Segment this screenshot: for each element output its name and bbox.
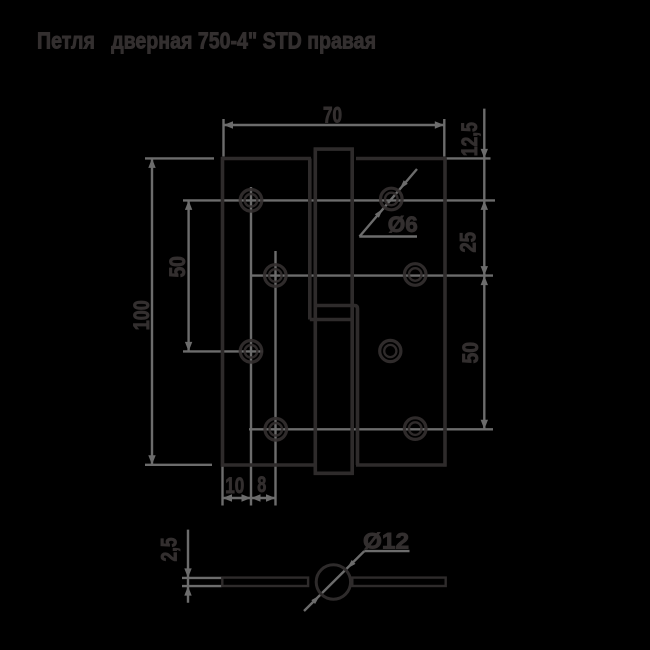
svg-text:8: 8 xyxy=(257,472,266,497)
svg-text:50: 50 xyxy=(458,342,483,364)
svg-text:Ø12: Ø12 xyxy=(363,529,409,554)
svg-text:Петля дверная 750-4" STD пра: Петля дверная 750-4" STD правая xyxy=(37,28,376,54)
svg-text:50: 50 xyxy=(165,256,190,278)
svg-text:Ø6: Ø6 xyxy=(388,212,418,237)
svg-text:12,5: 12,5 xyxy=(457,122,482,156)
svg-text:25: 25 xyxy=(455,232,480,253)
svg-text:70: 70 xyxy=(323,103,342,128)
svg-text:2,5: 2,5 xyxy=(157,538,182,562)
svg-text:100: 100 xyxy=(129,300,154,330)
svg-text:10: 10 xyxy=(225,473,244,498)
